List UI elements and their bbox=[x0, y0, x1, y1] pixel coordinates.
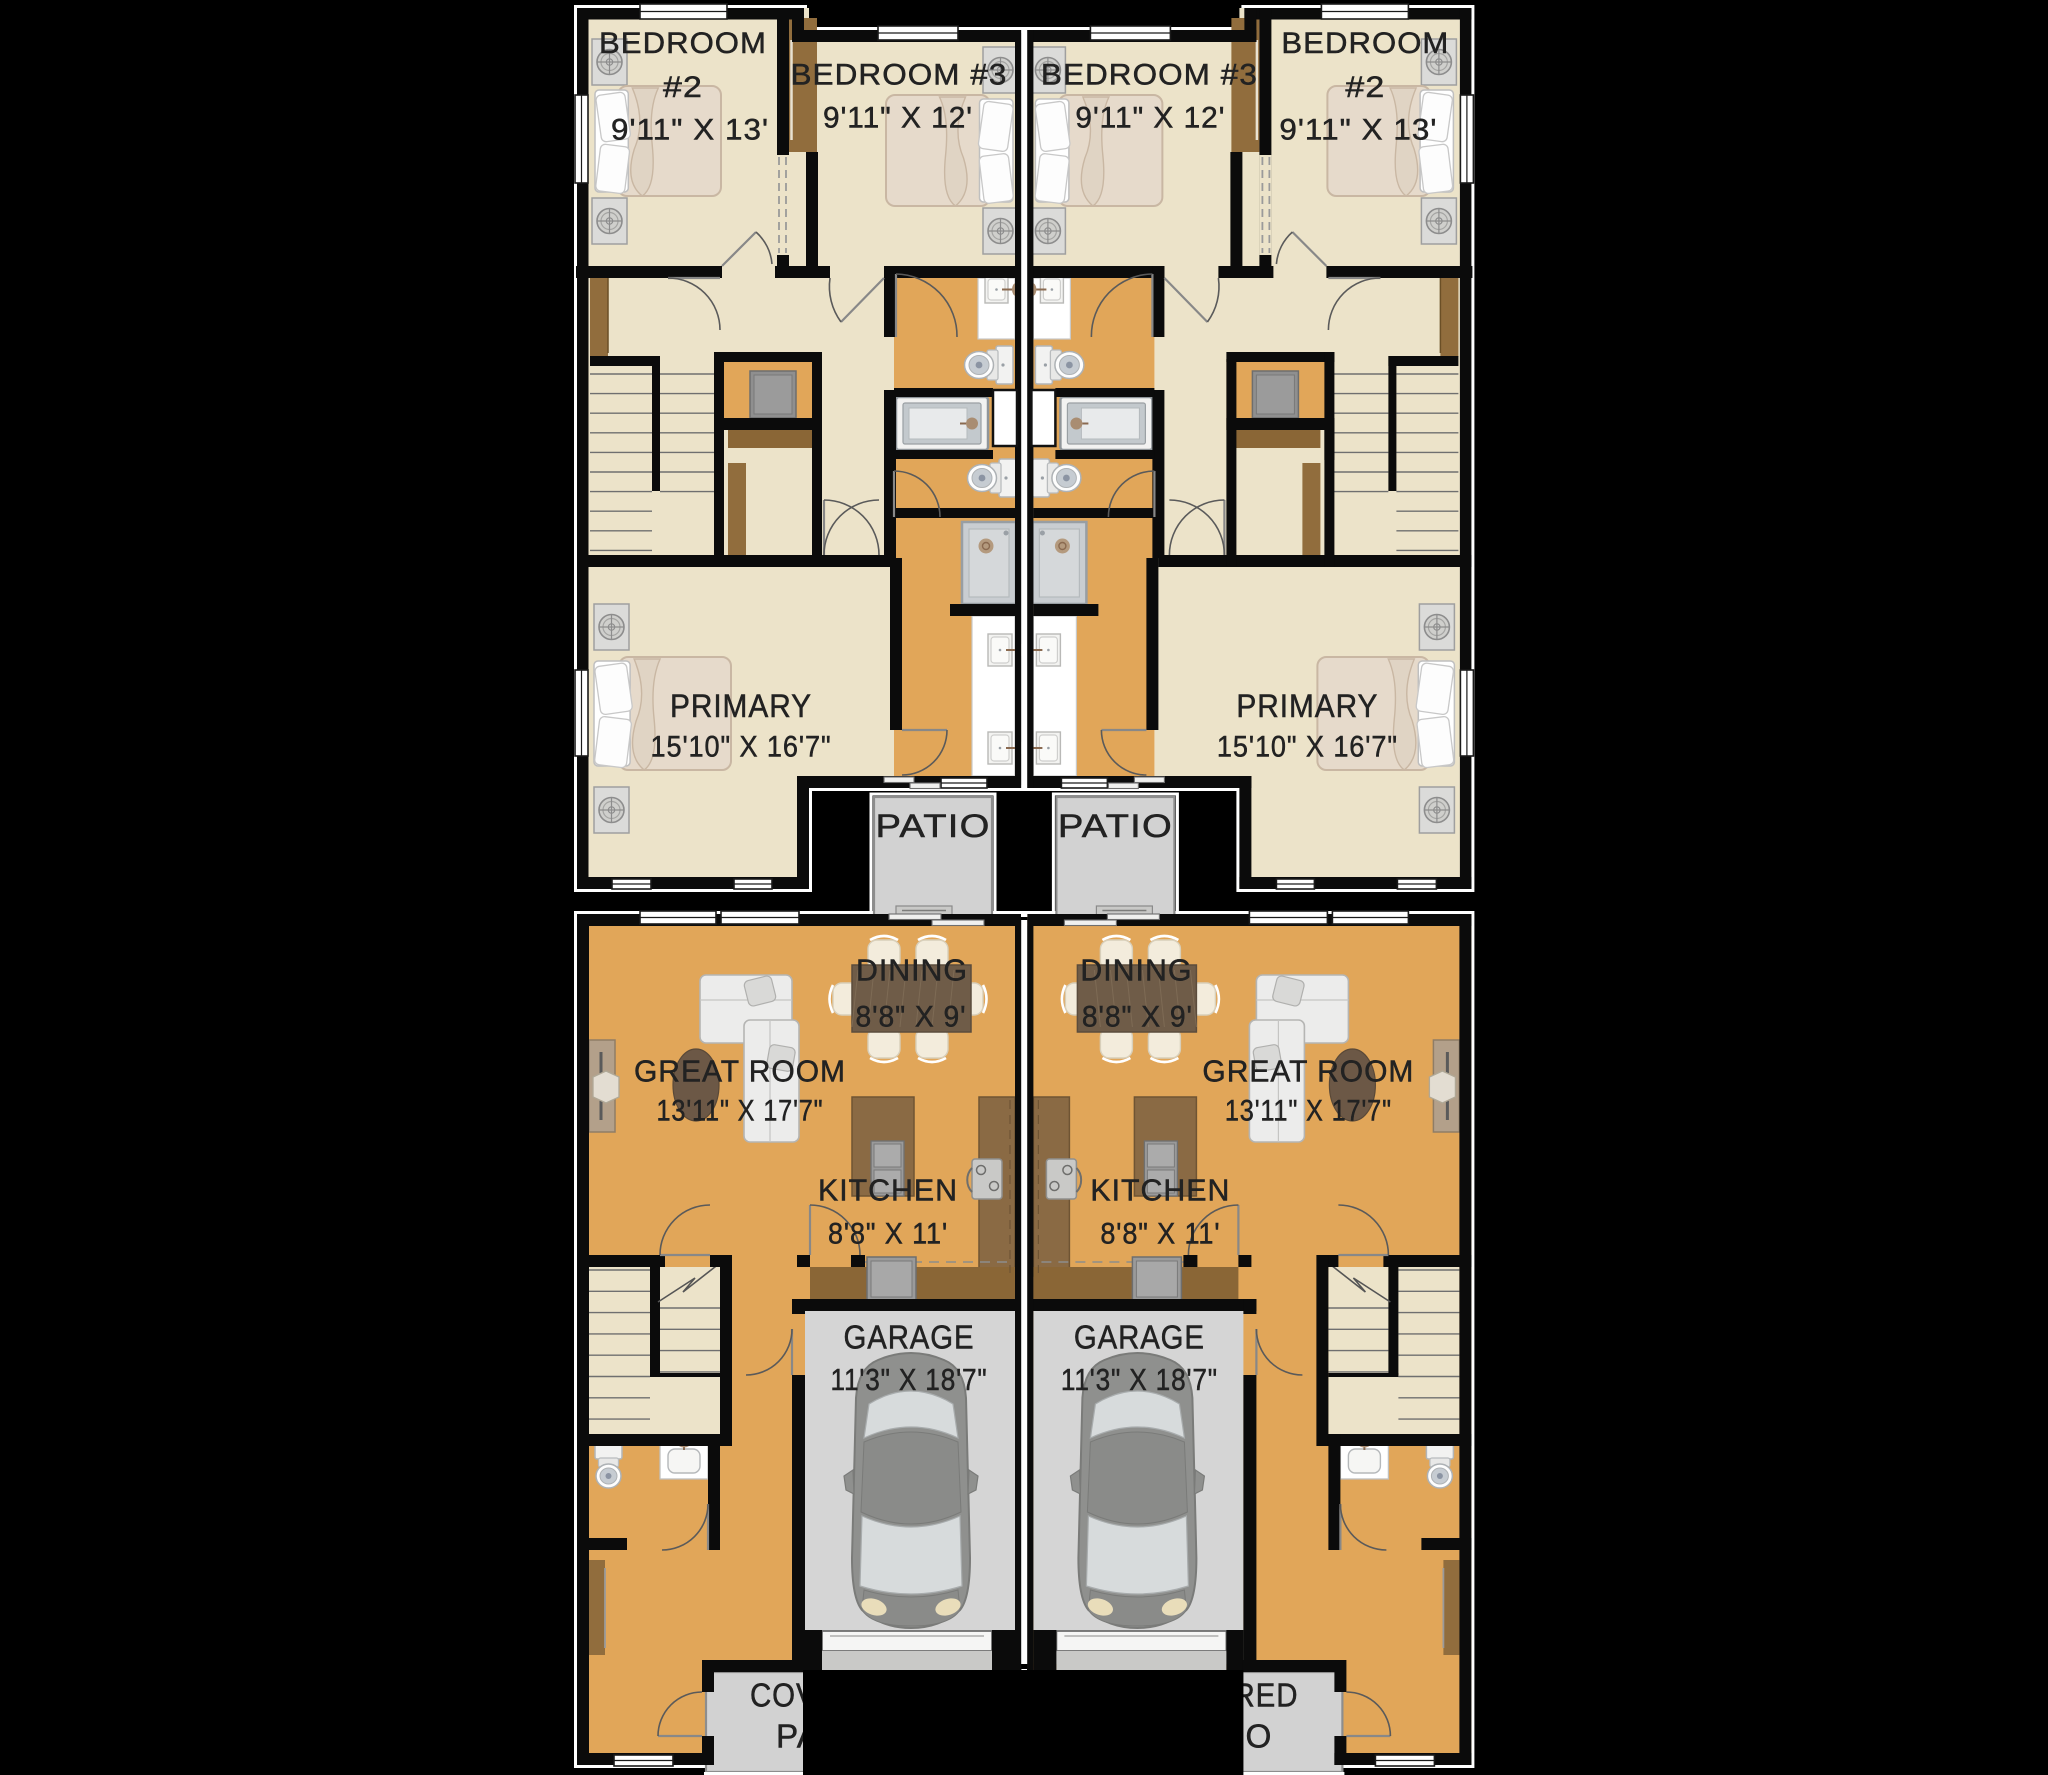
svg-text:8'8" X 9': 8'8" X 9' bbox=[856, 1001, 967, 1034]
svg-text:GARAGE: GARAGE bbox=[1074, 1319, 1205, 1356]
svg-text:BEDROOM #3: BEDROOM #3 bbox=[791, 59, 1008, 92]
svg-text:GREAT ROOM: GREAT ROOM bbox=[634, 1054, 846, 1089]
svg-text:PATIO: PATIO bbox=[1058, 808, 1173, 844]
svg-text:PRIMARY: PRIMARY bbox=[1236, 688, 1378, 724]
svg-text:PATIO: PATIO bbox=[876, 808, 991, 844]
svg-text:8'8" X 11': 8'8" X 11' bbox=[1100, 1218, 1220, 1251]
svg-text:BEDROOM: BEDROOM bbox=[599, 27, 767, 60]
svg-text:KITCHEN: KITCHEN bbox=[818, 1173, 958, 1208]
svg-text:11'3" X 18'7": 11'3" X 18'7" bbox=[831, 1362, 988, 1397]
svg-text:11'3" X 18'7": 11'3" X 18'7" bbox=[1061, 1362, 1218, 1397]
svg-text:GREAT ROOM: GREAT ROOM bbox=[1202, 1054, 1414, 1089]
svg-text:BEDROOM: BEDROOM bbox=[1281, 27, 1449, 60]
svg-text:9'11" X 12': 9'11" X 12' bbox=[1075, 102, 1225, 135]
svg-text:DINING: DINING bbox=[856, 953, 968, 988]
svg-text:9'11" X 13': 9'11" X 13' bbox=[611, 114, 769, 147]
svg-text:#2: #2 bbox=[663, 71, 703, 104]
svg-text:15'10" X 16'7": 15'10" X 16'7" bbox=[651, 731, 832, 764]
svg-text:8'8" X 11': 8'8" X 11' bbox=[828, 1218, 948, 1251]
svg-text:DINING: DINING bbox=[1080, 953, 1192, 988]
svg-text:#2: #2 bbox=[1345, 71, 1385, 104]
svg-text:9'11" X 12': 9'11" X 12' bbox=[823, 102, 973, 135]
svg-text:PRIMARY: PRIMARY bbox=[670, 688, 812, 724]
svg-text:9'11" X 13': 9'11" X 13' bbox=[1279, 114, 1437, 147]
svg-text:13'11" X 17'7": 13'11" X 17'7" bbox=[1225, 1095, 1392, 1128]
svg-text:13'11" X 17'7": 13'11" X 17'7" bbox=[657, 1095, 824, 1128]
svg-text:KITCHEN: KITCHEN bbox=[1090, 1173, 1230, 1208]
svg-text:15'10" X 16'7": 15'10" X 16'7" bbox=[1217, 731, 1398, 764]
svg-text:BEDROOM #3: BEDROOM #3 bbox=[1041, 59, 1258, 92]
svg-text:GARAGE: GARAGE bbox=[844, 1319, 975, 1356]
svg-text:8'8" X 9': 8'8" X 9' bbox=[1082, 1001, 1193, 1034]
